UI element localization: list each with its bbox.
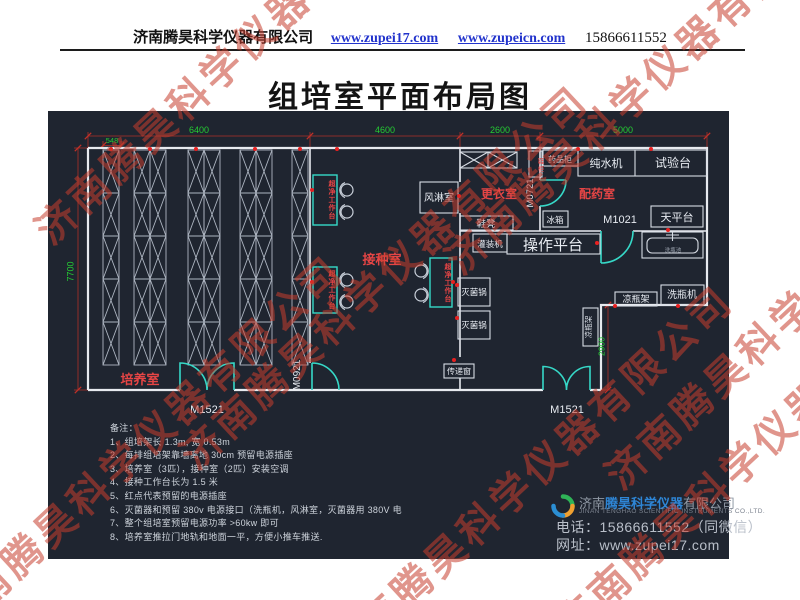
chairs — [340, 183, 428, 310]
note-item: 2、每排组培架靠墙离地 30cm 预留电源插座 — [110, 449, 420, 463]
dim-4600: 4600 — [375, 125, 395, 135]
label-bottle-washer: 洗瓶机 — [667, 288, 697, 301]
dim-2900: 2900 — [598, 325, 609, 369]
label-test-bench: 试验台 — [655, 155, 691, 170]
note-item: 3、培养室（3匹），接种室（2匹）安装空调 — [110, 463, 420, 477]
label-operation-platform: 操作平台 — [523, 237, 583, 254]
label-clean-bench-2: 超净工作台 — [313, 268, 335, 312]
note-item: 5、红点代表预留的电源插座 — [110, 490, 420, 504]
header-link-zupeicn[interactable]: www.zupeicn.com — [458, 31, 565, 46]
label-door-m1021: M1021 — [603, 214, 637, 226]
room-label-culture: 培养室 — [120, 372, 159, 387]
footer-phone: 电话：15866611552（同微信） — [556, 517, 762, 537]
label-balance-table: 天平台 — [661, 210, 694, 224]
footer-company-en: JINAN TENGHAO SCIENTIFIC INSTRUMENTS CO.… — [579, 508, 765, 515]
room-labels: 培养室 接种室 更衣室 配药室 — [120, 186, 615, 387]
dim-7700: 7700 — [67, 250, 78, 294]
label-door-m0721: M0721 — [526, 169, 538, 217]
label-fridge: 冰箱 — [546, 215, 564, 225]
dim-6400: 6400 — [189, 125, 209, 135]
page-title: 组培室平面布局图 — [0, 72, 800, 116]
header-link-zupei17[interactable]: www.zupei17.com — [331, 31, 438, 46]
label-sterilizer-1: 灭菌锅 — [461, 287, 487, 297]
page: 济南腾昊科学仪器有限公司 www.zupei17.com www.zupeicn… — [0, 0, 800, 600]
note-item: 8、培养室推拉门地轨和地面一平，方便小推车推送. — [110, 531, 420, 545]
label-water-purifier: 纯水机 — [590, 156, 623, 170]
label-air-shower: 风淋室 — [424, 191, 454, 204]
dim-5000: 5000 — [613, 125, 633, 135]
dim-2600: 2600 — [490, 125, 510, 135]
company-logo-icon — [551, 494, 575, 518]
header-company-name: 济南腾昊科学仪器有限公司 — [133, 30, 313, 46]
notes-block: 备注： 1、组培架长 1.3m, 宽 0.53m 2、每排组培架靠墙离地 30c… — [110, 422, 420, 544]
note-item: 7、整个组培室预留电源功率 >60kw 即可 — [110, 517, 420, 531]
dimension-labels: 6400 4600 2600 5000 548 — [106, 125, 633, 145]
label-clean-bench-3: 超净工作台 — [431, 259, 451, 306]
footer-website: 网址：www.zupei17.com — [556, 535, 720, 555]
header-divider — [60, 49, 745, 51]
label-clean-bench-1: 超净工作台 — [313, 176, 335, 224]
culture-rack-shelving — [103, 150, 308, 365]
door-m1521-right — [543, 367, 590, 391]
door-m1521-culture — [180, 363, 234, 390]
door-m0721 — [540, 180, 566, 206]
label-shoe-bench: 鞋凳 — [476, 218, 496, 230]
header-phone: 15866611552 — [585, 30, 667, 46]
room-label-dispensing: 配药室 — [579, 186, 615, 201]
label-filling-machine: 灌装机 — [477, 239, 503, 249]
label-door-m1521-right: M1521 — [550, 404, 584, 416]
room-label-inoculation: 接种室 — [362, 252, 401, 267]
label-door-m1521-culture: M1521 — [190, 404, 224, 416]
label-door-m0921: M0921 — [293, 351, 305, 399]
inner-walls — [310, 148, 707, 390]
label-pass-window: 传递窗 — [447, 366, 471, 376]
page-header: 济南腾昊科学仪器有限公司 www.zupei17.com www.zupeicn… — [0, 26, 800, 47]
notes-heading: 备注： — [110, 422, 420, 436]
floor-plan: 6400 4600 2600 5000 548 — [48, 111, 729, 423]
outer-walls — [88, 148, 707, 390]
dim-548: 548 — [106, 136, 119, 145]
door-m0921 — [312, 363, 339, 390]
equipment-outlines — [420, 150, 707, 378]
room-label-changing: 更衣室 — [481, 186, 517, 201]
label-bottle-cool-rack-vertical: 凉瓶架 — [585, 306, 595, 348]
cad-canvas: 6400 4600 2600 5000 548 — [48, 111, 729, 559]
note-item: 6、灭菌器和预留 380v 电源接口（洗瓶机，风淋室，灭菌器用 380V 电 — [110, 504, 420, 518]
note-item: 4、接种工作台长为 1.5 米 — [110, 476, 420, 490]
label-medicine-cabinet: 药品柜 — [548, 154, 572, 164]
sink-faucet-icon — [666, 232, 679, 241]
label-bottle-cool-rack: 凉瓶架 — [622, 293, 649, 304]
label-sterilizer-2: 灭菌锅 — [461, 320, 487, 330]
door-m1021 — [601, 231, 633, 263]
label-sink: 洗瓶池 — [665, 246, 682, 254]
note-item: 1、组培架长 1.3m, 宽 0.53m — [110, 436, 420, 450]
